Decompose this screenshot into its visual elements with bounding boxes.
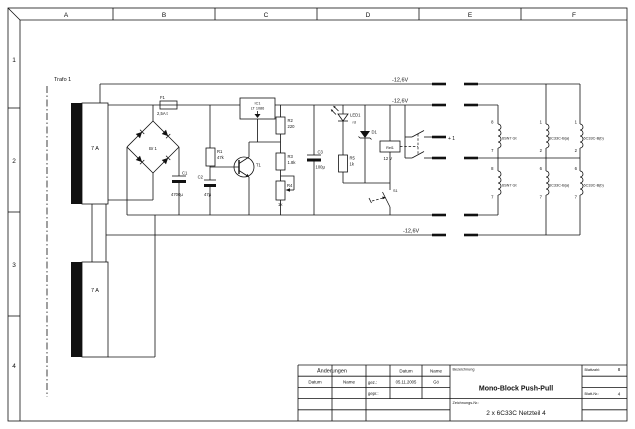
- plus-one-label: + 1: [448, 136, 455, 142]
- r4-body: [276, 181, 285, 200]
- capacitor-c2: C2 47µ: [198, 166, 216, 215]
- sn7-pin: 8: [491, 166, 494, 171]
- s1-ref: S1: [393, 189, 398, 193]
- relay-value: 12 V: [384, 156, 393, 161]
- sn7-pin: 8: [491, 120, 494, 125]
- t1-ref: T1: [256, 163, 262, 168]
- schematic-canvas: A B C D E F 1 2 3 4 Trafo 1 7 A 7 A: [0, 0, 635, 429]
- c33b-label: 6C33C-B(b): [584, 137, 605, 141]
- regulator-ic1: IC1 LT 1086: [240, 98, 281, 142]
- bridge-ref: Br 1: [149, 146, 157, 151]
- diode-d1: D1: [359, 105, 378, 183]
- transformer-label: Trafo 1: [54, 77, 71, 83]
- changes-date-header: Datum: [308, 380, 322, 385]
- col-label-d: D: [366, 12, 371, 19]
- c2-ref: C2: [198, 175, 204, 180]
- r5-value: 1k: [350, 162, 355, 167]
- sn7-pin: 7: [491, 148, 494, 153]
- fuse-value: 2,5A t: [157, 111, 169, 116]
- d1-ref: D1: [372, 130, 378, 135]
- wires: [100, 84, 432, 235]
- name-header: Name: [430, 369, 443, 374]
- c33b-label: 6C33C-B(b): [584, 184, 605, 188]
- connector-stubs: [432, 84, 478, 235]
- c33b-pin: 6: [575, 166, 578, 171]
- winding-core-lower: [71, 262, 82, 357]
- winding-upper-label: 7 A: [91, 146, 99, 152]
- sheet-number-label: Blatt-Nr.:: [585, 392, 600, 396]
- row-label-1: 1: [12, 57, 16, 64]
- checked-label: gepr.:: [368, 391, 378, 396]
- rail-top-label: -12,6V: [392, 78, 409, 84]
- col-label-f: F: [572, 12, 576, 19]
- sn7-label: 6SN7 Gt: [502, 184, 518, 188]
- schematic-page: A B C D E F 1 2 3 4 Trafo 1 7 A 7 A: [0, 0, 635, 429]
- drawing-number-value: 2 x 6C33C Netzteil 4: [486, 410, 546, 417]
- c33b-pin: 7: [575, 195, 578, 200]
- c33a-pin: 7: [540, 195, 543, 200]
- c33a-pin: 6: [540, 166, 543, 171]
- relay-rel1: Rel1 12 V: [380, 105, 418, 190]
- heater-coil: [498, 171, 501, 195]
- c33a-label: 6C33C-B(a): [549, 184, 570, 188]
- row-label-4: 4: [12, 363, 16, 370]
- r4-wiper-arrow: [286, 188, 291, 191]
- drawn-name: Gö: [433, 380, 439, 385]
- led-triangle: [338, 114, 348, 121]
- c33a-pin: 2: [540, 148, 543, 153]
- r2-body: [276, 117, 285, 134]
- resistor-r2: R2 220: [276, 105, 295, 153]
- ic1-ref: IC1: [255, 102, 261, 106]
- capacitor-c1: C1 4700µ: [171, 147, 188, 215]
- c33a-label: 6C33C-B(a): [549, 137, 570, 141]
- changes-name-header: Name: [343, 380, 356, 385]
- relay-ref: Rel1: [386, 146, 394, 150]
- bridge-rectifier-br1: Br 1: [127, 121, 179, 173]
- r1-value: 47k: [217, 155, 225, 160]
- r4-ref: R4: [287, 183, 293, 188]
- led-color: rd: [353, 121, 356, 125]
- winding-upper: [82, 103, 108, 204]
- transformer-trafo1: Trafo 1 7 A 7 A: [47, 77, 155, 397]
- drawing-title: Mono-Block Push-Pull: [479, 386, 553, 393]
- switch-s1: S1: [369, 189, 398, 215]
- drawn-date: 05.11.2005: [396, 380, 417, 385]
- r2-value: 220: [288, 124, 296, 129]
- sheet-count-value: 8: [618, 367, 621, 372]
- winding-lower: [82, 262, 108, 357]
- d1-triangle: [360, 131, 370, 138]
- col-label-e: E: [468, 12, 473, 19]
- sn7-pin: 7: [491, 195, 494, 200]
- c33b-pin: 2: [575, 148, 578, 153]
- ic1-value: LT 1086: [251, 107, 265, 111]
- winding-lower-label: 7 A: [91, 288, 99, 294]
- capacitor-c3: C3 100µ: [307, 105, 325, 215]
- r3-value: 1.8k: [288, 160, 297, 165]
- r1-ref: R1: [217, 149, 223, 154]
- sheet-count-label: Blattzahl:: [585, 368, 601, 372]
- led-ref: LED1: [350, 113, 361, 118]
- r5-body: [339, 155, 348, 172]
- sn7-label: 6SN7 Gt: [502, 137, 518, 141]
- drawing-number-label: Zeichnungs-Nr.:: [453, 401, 480, 405]
- c1-ref: C1: [182, 171, 188, 176]
- rail-bottom-label: -12,6V: [403, 229, 420, 235]
- c33a-pin: 1: [540, 120, 543, 125]
- row-label-2: 2: [12, 158, 16, 165]
- changes-header: Änderungen: [317, 368, 347, 375]
- r3-ref: R3: [288, 154, 294, 159]
- resistor-r1: R1 47k: [206, 105, 225, 166]
- drawn-label: gez.:: [368, 380, 377, 385]
- r3-body: [276, 153, 285, 170]
- c1-value: 4700µ: [171, 192, 183, 197]
- ic1-adj-tab: [255, 114, 261, 118]
- r1-body: [206, 148, 215, 166]
- relay-contacts: + 1: [405, 105, 455, 158]
- col-label-a: A: [64, 12, 69, 19]
- fuse-f1: F1 2,5A t: [157, 95, 177, 116]
- drawing-frame: A B C D E F 1 2 3 4: [8, 8, 627, 421]
- rail-mid-label: -12,6V: [392, 99, 409, 105]
- led1-branch: LED1 rd R5 1k: [331, 105, 390, 183]
- col-label-c: C: [264, 12, 269, 19]
- tube-heater-section: 8 7 8 7 6SN7 Gt 6SN7 Gt 1 2 6 7 6C33C-B(…: [478, 84, 604, 235]
- trimmer-r4: R4 1k: [276, 176, 294, 215]
- heater-coil: [498, 124, 501, 148]
- r5-ref: R5: [350, 156, 356, 161]
- c3-value: 100µ: [316, 165, 326, 170]
- resistor-r3: R3 1.8k: [276, 153, 296, 181]
- row-label-3: 3: [12, 262, 16, 269]
- sheet-number-value: 4: [618, 392, 621, 397]
- winding-core-upper: [71, 103, 82, 204]
- r2-ref: R2: [288, 118, 294, 123]
- c33b-pin: 1: [575, 120, 578, 125]
- designation-label: Bezeichnung: [453, 368, 475, 372]
- date-header: Datum: [399, 369, 413, 374]
- col-label-b: B: [162, 12, 166, 19]
- corner-diagonal: [8, 8, 20, 20]
- fuse-ref: F1: [160, 95, 166, 100]
- title-block: Änderungen Datum Name Datum Name gez.: 0…: [298, 365, 627, 421]
- c3-ref: C3: [318, 150, 324, 155]
- c2-value: 47µ: [204, 192, 212, 197]
